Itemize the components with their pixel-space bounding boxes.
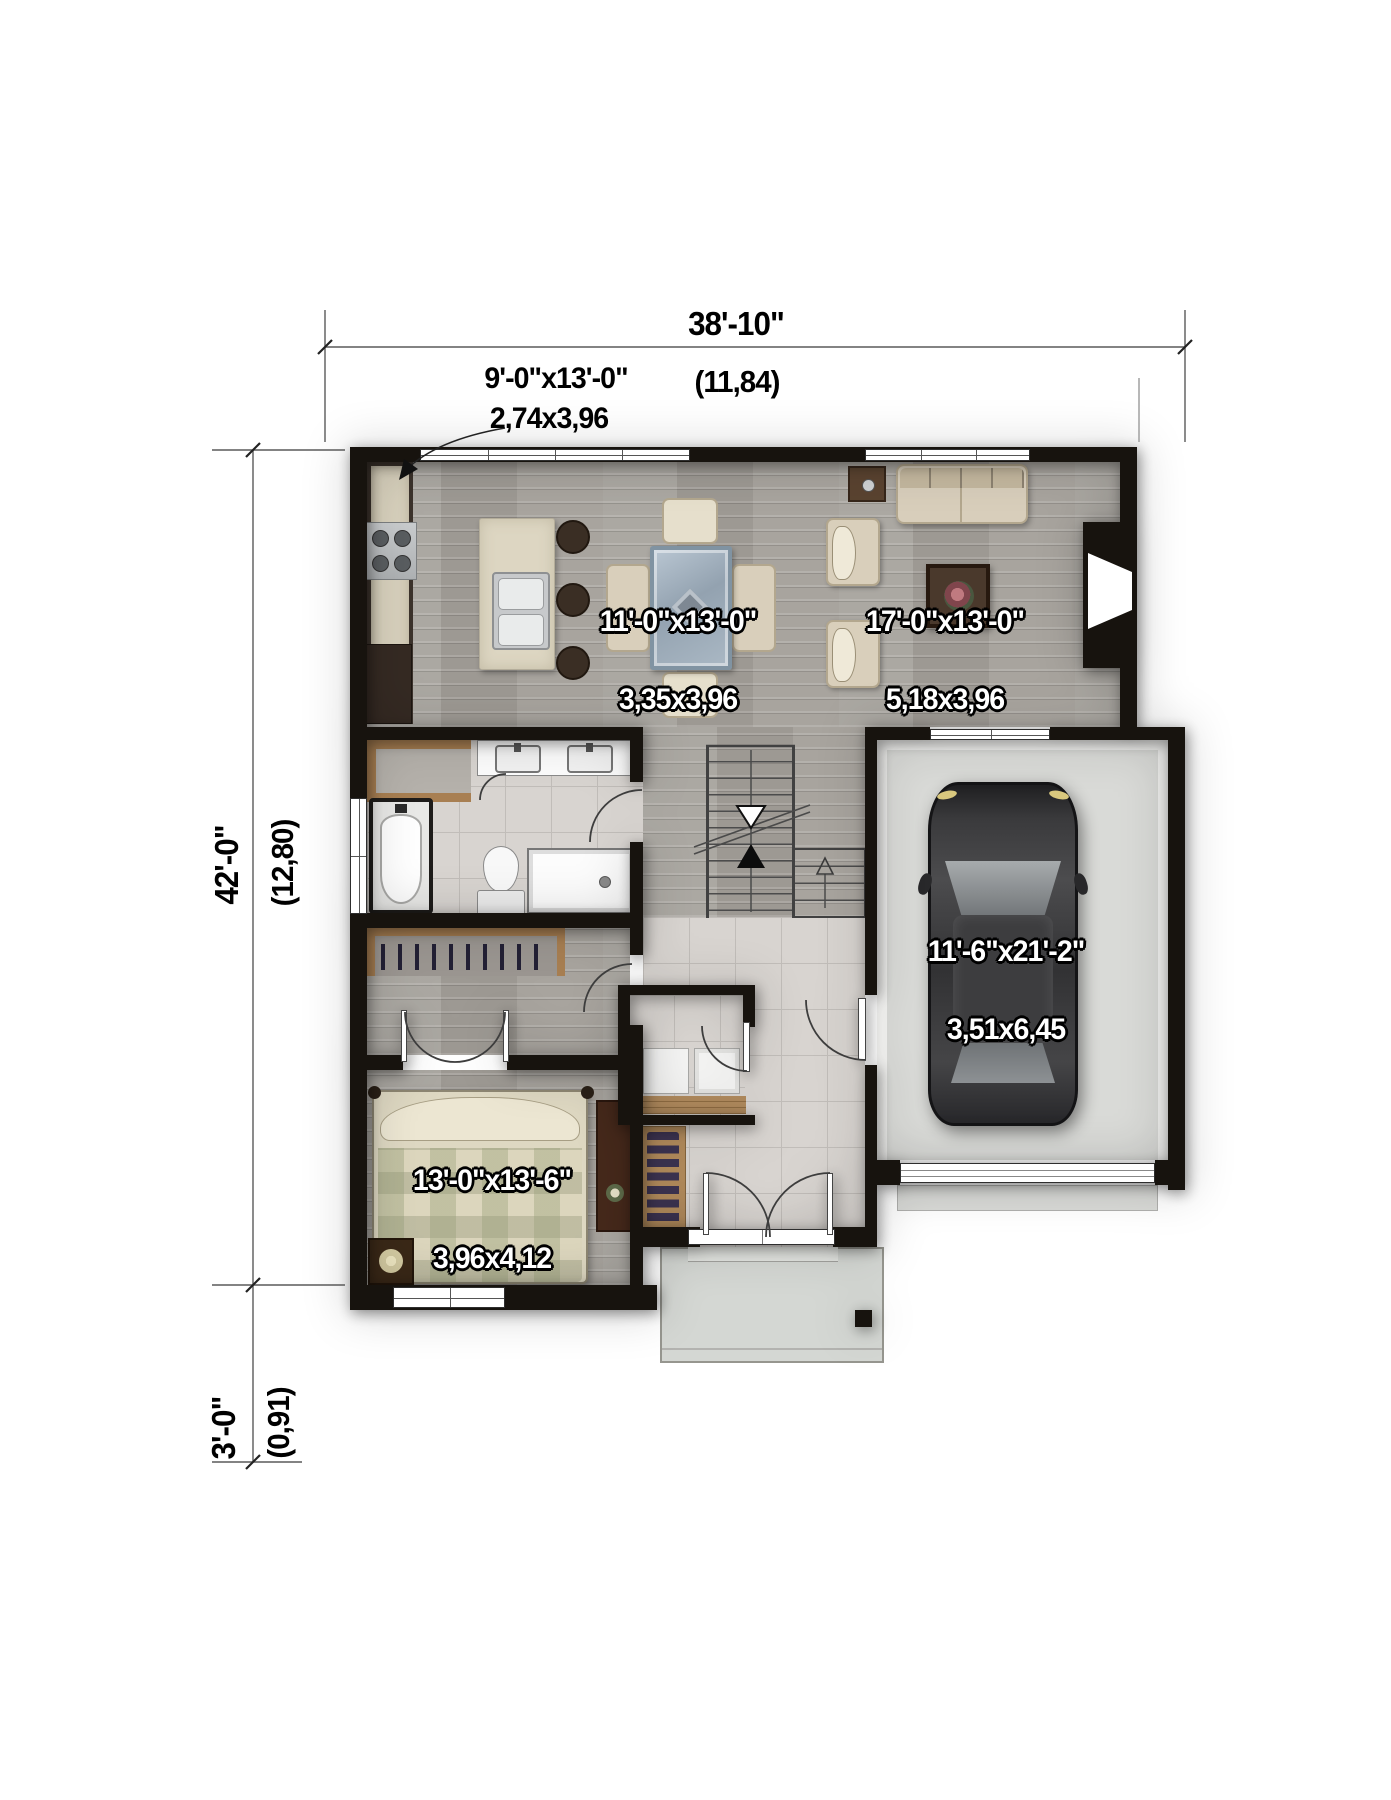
label-living-room: 17'-0"x13'-0" 5,18x3,96 <box>866 563 1024 719</box>
floor-plan: 38'-10" (11,84) 42'-0" (12,80) 3'-0" (0,… <box>0 0 1391 1800</box>
dim-porch-meters: (0,91) <box>261 1387 297 1458</box>
label-garage: 11'-6"x21'-2" 3,51x6,45 <box>928 893 1085 1049</box>
dim-depth-feet: 42'-0" <box>208 825 246 904</box>
label-dining-meters: 3,35x3,96 <box>619 683 737 716</box>
dim-depth-meters: (12,80) <box>265 820 301 907</box>
dim-width-meters: (11,84) <box>694 364 779 400</box>
labels-layer: 38'-10" (11,84) 42'-0" (12,80) 3'-0" (0,… <box>0 0 1391 1800</box>
label-dining-room: 11'-0"x13'-0" 3,35x3,96 <box>600 563 757 719</box>
dim-width-feet: 38'-10" <box>688 305 784 343</box>
label-kitchen-meters: 2,74x3,96 <box>490 402 608 436</box>
label-living-meters: 5,18x3,96 <box>886 683 1004 716</box>
label-dining-feet: 11'-0"x13'-0" <box>600 605 757 638</box>
label-bedroom-feet: 13'-0"x13'-6" <box>413 1164 571 1197</box>
label-living-feet: 17'-0"x13'-0" <box>866 605 1024 638</box>
label-bedroom-meters: 3,96x4,12 <box>433 1242 551 1275</box>
dim-porch-feet: 3'-0" <box>205 1397 243 1460</box>
label-garage-meters: 3,51x6,45 <box>947 1013 1065 1046</box>
label-kitchen-feet: 9'-0"x13'-0" <box>484 362 627 396</box>
label-garage-feet: 11'-6"x21'-2" <box>928 935 1085 968</box>
label-bedroom: 13'-0"x13'-6" 3,96x4,12 <box>413 1122 571 1278</box>
